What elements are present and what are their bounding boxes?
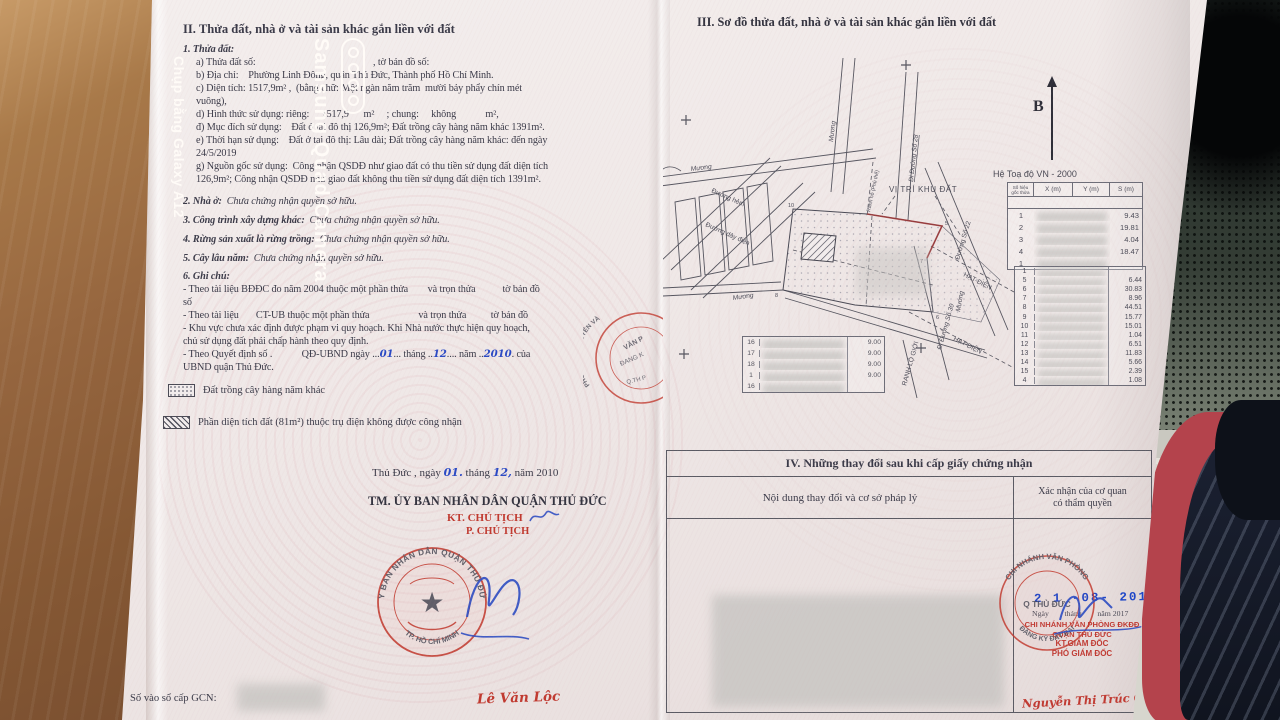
north-arrow-tip — [1047, 76, 1057, 87]
gcn-book-number-label: Số vào sổ cấp GCN: — [130, 693, 217, 704]
redacted-xy — [1037, 260, 1107, 269]
redacted-change-content — [712, 595, 1004, 707]
north-arrow-shaft — [1051, 86, 1053, 160]
redacted-xy — [1038, 306, 1105, 312]
redacted-cell — [763, 384, 843, 392]
stamp-arc-top: ỦY BAN NHÂN DÂN QUẬN THỦ ĐỨC — [370, 540, 489, 599]
legend-item-crops: Đất trồng cây hàng năm khác — [168, 384, 325, 397]
coordinate-table-1-header: Số hiệugốc thửa X (m) Y (m) S (m) — [1008, 183, 1142, 197]
redacted-xy — [1038, 334, 1105, 340]
table-row: 189.00 — [743, 359, 884, 370]
svg-text:CHI NHÁNH VĂN PHÒNG: CHI NHÁNH VĂN PHÒNG — [1003, 552, 1090, 582]
map-label-muong-mid: Mương — [828, 120, 838, 142]
map-label-road-hem: Đường hẻm — [710, 187, 746, 208]
confirming-org-lines: CHI NHÁNH VĂN PHÒNG ĐKĐĐ QUẬN THỦ ĐỨC KT… — [1016, 620, 1148, 659]
redacted-gcn-number — [237, 684, 325, 711]
dots-pattern-swatch — [168, 384, 195, 397]
legend-item-pylon: Phần diện tích đất (81m²) thuộc trụ điện… — [163, 416, 462, 429]
svg-text:TP. HỒ CHÍ MINH: TP. HỒ CHÍ MINH — [403, 628, 460, 646]
redacted-xy — [1038, 288, 1105, 294]
photo-of-land-certificate: Samsung Quad Camera Chụp bằng Galaxy A12… — [0, 0, 1280, 720]
watermark-title: Samsung Quad Camera — [196, 38, 332, 283]
redacted-xy — [1038, 370, 1105, 376]
table-row: 19.43 — [1008, 209, 1142, 221]
coordinate-table-2: 1 56.44 630.83 78.96 844.51 915.77 1015.… — [1014, 266, 1146, 386]
stamp-arc-bottom: TP. HỒ CHÍ MINH — [403, 628, 460, 646]
table-row: 111.04 — [1015, 331, 1145, 340]
redacted-xy — [1037, 248, 1107, 257]
small-blue-scribble — [528, 508, 562, 526]
committee-line: TM. ỦY BAN NHÂN DÂN QUẬN THỦ ĐỨC — [368, 494, 607, 509]
table-row: 34.04 — [1008, 233, 1142, 245]
redacted-map-area — [856, 248, 928, 296]
map-label-muong-low: Mương — [732, 292, 754, 302]
table-row: 1 — [1008, 257, 1142, 269]
table-row: 630.83 — [1015, 285, 1145, 294]
day-handwritten: 01. — [444, 466, 463, 479]
vertex-8: 8 — [775, 293, 778, 299]
map-label-ranh-ho: Ranh hồ (Phủ thế) — [865, 169, 881, 212]
map-label-site-location: VỊ TRÍ KHU ĐẤT — [889, 184, 957, 194]
thang: tháng — [463, 467, 493, 479]
redacted-xy — [1038, 379, 1105, 385]
redacted-xy — [1038, 315, 1105, 321]
redacted-xy — [1037, 212, 1107, 221]
section-3-heading: III. Sơ đồ thửa đất, nhà ở và tài sản kh… — [697, 15, 996, 30]
table-row: 56.44 — [1015, 276, 1145, 285]
redacted-xy — [1038, 324, 1105, 330]
place-date-line: Thủ Đức , ngày 01. tháng 12, năm 2010 — [372, 466, 558, 479]
section-4-body-row: 2 1 -08- 2017 Ngày tháng năm 2017 CHI NH… — [667, 519, 1151, 712]
org-kt-line: KT.GIÁM ĐỐC — [1016, 639, 1148, 649]
watermark-subtitle: Chụp bằng Galaxy A12 — [55, 56, 187, 218]
map-label-muong-top: Mương — [690, 163, 712, 173]
table-row: 152.39 — [1015, 367, 1145, 376]
office-round-stamp: CHI NHÁNH VĂN PHÒNG ĐĂNG KÝ ĐẤT ĐAI Q TH… — [992, 548, 1102, 658]
redacted-xy — [1037, 236, 1107, 245]
redacted-cell — [763, 373, 843, 381]
navy-shoe-top — [1215, 400, 1280, 520]
office-stamp-arc-top: CHI NHÁNH VĂN PHÒNG — [1003, 552, 1090, 582]
map-label-road-30: Đi Đường Số 30 — [935, 302, 956, 350]
org-line-1: CHI NHÁNH VĂN PHÒNG ĐKĐĐ — [1016, 620, 1148, 630]
coordinate-system-title: Hệ Toạ độ VN - 2000 — [993, 169, 1077, 179]
note-4-mid1: ... tháng .. — [394, 349, 433, 360]
side-stamp-arc: PHÒNG TÀI NGUYÊN VÀ — [583, 313, 602, 388]
hatch-pattern-swatch — [163, 416, 190, 429]
section-4-table: IV. Những thay đổi sau khi cấp giấy chứn… — [666, 450, 1152, 713]
note-4-post: . của — [512, 349, 531, 360]
vertex-5: 5 — [945, 221, 948, 227]
committee-round-stamp: ỦY BAN NHÂN DÂN QUẬN THỦ ĐỨC TP. HỒ CHÍ … — [370, 540, 494, 664]
section-4-confirmation-cell: 2 1 -08- 2017 Ngày tháng năm 2017 CHI NH… — [1014, 519, 1151, 712]
cadastral-sketch-map: 10 5 7 6 8 Mương Mương Mương Mương Đường… — [663, 50, 1015, 465]
col-seq-b: gốc thửa — [1011, 190, 1029, 195]
side-stamp-line1: VĂN P — [622, 334, 645, 352]
vertex-6: 6 — [936, 315, 939, 321]
redacted-cell — [763, 351, 843, 359]
dimension-table: 169.00 179.00 189.00 19.00 16 — [742, 336, 885, 393]
stamp-star-emblem: ★ — [419, 587, 444, 618]
table-row: 1015.01 — [1015, 322, 1145, 331]
date-line-small: Ngày tháng năm 2017 — [1032, 609, 1128, 618]
date-received-stamp: 2 1 -08- 2017 — [1034, 590, 1158, 606]
vertex-7: 7 — [920, 259, 923, 265]
redacted-xy — [1038, 361, 1105, 367]
org-line-2: QUẬN THỦ ĐỨC — [1016, 630, 1148, 640]
table-row: 126.51 — [1015, 340, 1145, 349]
camera-watermark: Samsung Quad Camera Chụp bằng Galaxy A12 — [55, 38, 365, 368]
table-row: 219.81 — [1008, 221, 1142, 233]
section-4-content-cell — [667, 519, 1014, 712]
quad-camera-icon — [341, 38, 365, 114]
map-label-hatdien-2: HẠT-ĐIỆN — [952, 334, 984, 356]
section-4-col1-header: Nội dung thay đổi và cơ sở pháp lý — [667, 477, 1014, 518]
side-stamp-line2: ĐANG K — [619, 351, 645, 368]
north-label: B — [1033, 98, 1044, 116]
redacted-cell — [763, 340, 843, 348]
table-row: 1311.83 — [1015, 349, 1145, 358]
table-row: 179.00 — [743, 348, 884, 359]
page-fold — [648, 0, 670, 720]
col-y: Y (m) — [1073, 183, 1110, 196]
map-label-ranh-lo-gioi: RANH LỘ GIỚI — [899, 340, 920, 386]
kt-chairman-line: KT. CHỦ TỊCH — [447, 512, 523, 524]
svg-text:PHÒNG TÀI NGUYÊN VÀ: PHÒNG TÀI NGUYÊN VÀ — [583, 313, 602, 388]
table-row: 78.96 — [1015, 294, 1145, 303]
redacted-xy — [1038, 270, 1105, 276]
table-row: 418.47 — [1008, 245, 1142, 257]
redacted-xy — [1038, 279, 1105, 285]
redacted-xy — [1037, 224, 1107, 233]
chairman-signature — [455, 555, 545, 650]
office-signature — [1052, 582, 1148, 644]
col-s: S (m) — [1110, 183, 1142, 196]
note-4-mid2: .... năm .. — [447, 349, 484, 360]
table-row: 169.00 — [743, 337, 884, 348]
month-handwritten: 12, — [493, 466, 512, 479]
map-label-hatdien-1: HẠT-ĐIỆN — [962, 270, 994, 292]
note-4-year-handwritten: 2010 — [484, 348, 512, 360]
map-label-road-28: Đi Đường Số 28 — [907, 134, 920, 182]
table-row: 915.77 — [1015, 312, 1145, 321]
office-stamp-center: Q THỦ ĐỨC — [1023, 598, 1070, 609]
north-arrow: B — [1035, 74, 1069, 166]
col2-line1: Xác nhận của cơ quan — [1038, 486, 1127, 498]
section-4-col2-header: Xác nhận của cơ quan có thẩm quyền — [1014, 477, 1151, 518]
deputy-chairman-line: P. CHỦ TỊCH — [466, 526, 529, 537]
redacted-xy — [1038, 343, 1105, 349]
section-4-title: IV. Những thay đổi sau khi cấp giấy chứn… — [667, 451, 1151, 477]
org-role-line: PHÓ GIÁM ĐỐC — [1016, 649, 1148, 659]
map-label-muong-right: Mương — [955, 290, 966, 312]
col-x: X (m) — [1034, 183, 1073, 196]
side-stamp-line3: Q.TH P — [626, 375, 647, 386]
coordinate-table-1: Số hiệugốc thửa X (m) Y (m) S (m) 19.43 … — [1007, 182, 1143, 270]
svg-text:ỦY BAN NHÂN DÂN QUẬN THỦ ĐỨC: ỦY BAN NHÂN DÂN QUẬN THỦ ĐỨC — [370, 540, 489, 599]
legend-label-pylon: Phần diện tích đất (81m²) thuộc trụ điện… — [198, 417, 462, 428]
place-pre: Thủ Đức , ngày — [372, 467, 444, 479]
col2-line2: có thẩm quyền — [1053, 498, 1112, 510]
section-4-header-row: Nội dung thay đổi và cơ sở pháp lý Xác n… — [667, 477, 1151, 519]
section-2-heading: II. Thửa đất, nhà ở và tài sản khác gắn … — [183, 23, 655, 36]
office-stamp-arc-bottom: ĐĂNG KÝ ĐẤT ĐAI — [1018, 625, 1077, 643]
redacted-cell — [763, 362, 843, 370]
note-4-day-handwritten: 01 — [380, 348, 394, 360]
table-row: 41.08 — [1015, 376, 1145, 385]
table-row: 1 — [1015, 267, 1145, 276]
vertex-10: 10 — [788, 203, 794, 209]
svg-text:ĐĂNG KÝ ĐẤT ĐAI: ĐĂNG KÝ ĐẤT ĐAI — [1018, 625, 1077, 643]
signer-name-script: Lê Văn Lộc — [477, 689, 561, 708]
note-4-month-handwritten: 12 — [433, 348, 447, 360]
table-row: 16 — [743, 381, 884, 392]
col-seq-a: Số hiệu — [1013, 185, 1029, 190]
legend-label-crops: Đất trồng cây hàng năm khác — [203, 385, 325, 396]
table-row: 844.51 — [1015, 303, 1145, 312]
redacted-xy — [1038, 352, 1105, 358]
nam-year: năm 2010 — [512, 467, 558, 479]
table-1-blank-row — [1008, 197, 1142, 209]
partial-side-stamp: PHÒNG TÀI NGUYÊN VÀ VĂN P ĐANG K Q.TH P — [583, 306, 663, 410]
map-label-road-22: Đường Số 22 — [952, 219, 972, 260]
table-row: 19.00 — [743, 370, 884, 381]
redacted-xy — [1038, 297, 1105, 303]
table-row: 145.66 — [1015, 358, 1145, 367]
map-label-power-line: Đường dây điện — [704, 221, 751, 247]
